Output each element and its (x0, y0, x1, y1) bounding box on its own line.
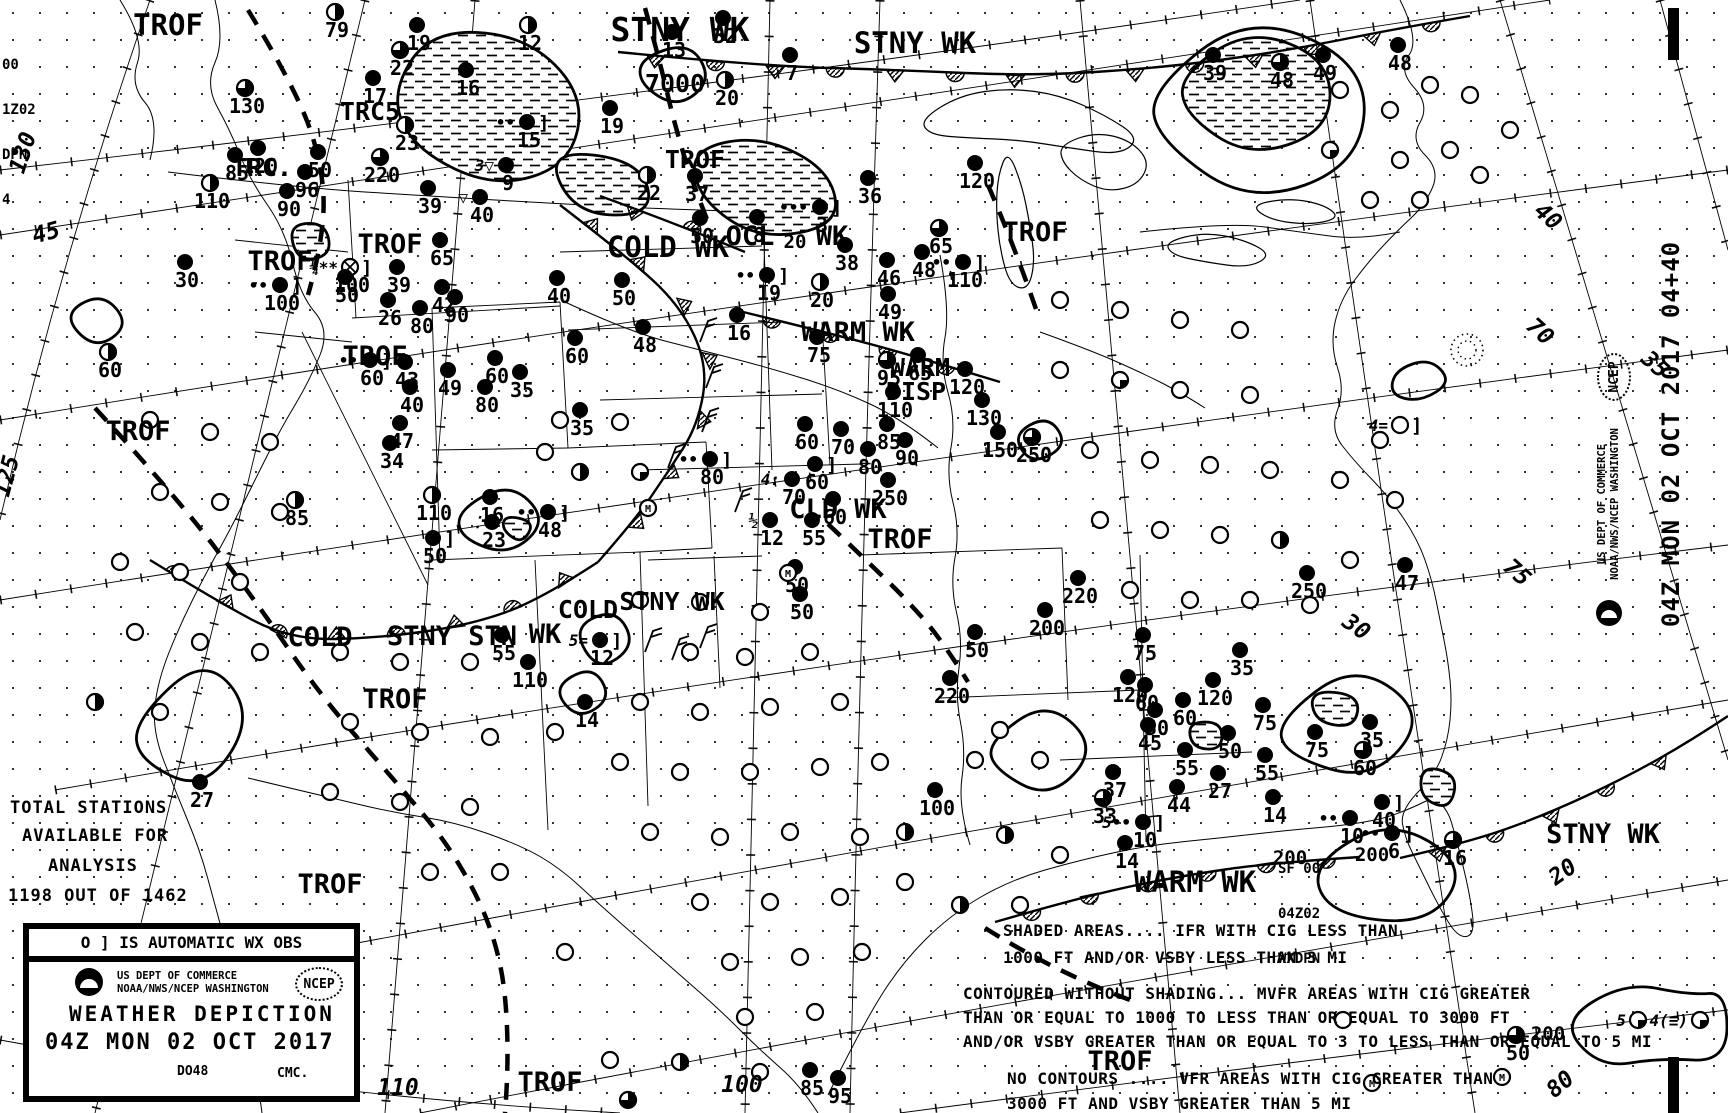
graticule-label: 110 (377, 1075, 419, 1101)
station-plot (1052, 362, 1068, 378)
station-plot (620, 1092, 636, 1108)
station-plot (1182, 592, 1198, 608)
product-code: DO48 (177, 1064, 208, 1079)
station-plot (1262, 462, 1278, 478)
station-value: 23 (395, 131, 419, 155)
station-value: 250 (1016, 443, 1052, 467)
note-shaded-1: SHADED AREAS.... IFR WITH CIG LESS THAN (1003, 921, 1398, 940)
station-plot (632, 464, 648, 480)
station-value: 35 (1230, 656, 1254, 680)
station-bracket: ] (291, 275, 302, 297)
ncep-logo: NCEP (295, 967, 343, 1001)
station-value: 110 (416, 501, 452, 525)
auto-obs-note: O ] IS AUTOMATIC WX OBS (29, 929, 354, 962)
station-plot (152, 704, 168, 720)
station-value: 90 (277, 197, 301, 221)
station-plot (252, 644, 268, 660)
map-label: OCL (726, 221, 775, 252)
station-bracket: ] (1154, 812, 1165, 834)
map-label: TROF (867, 524, 932, 555)
station-plot (1152, 522, 1168, 538)
station-plot (967, 752, 983, 768)
station-plot (1012, 897, 1028, 913)
station-value: 14 (1263, 803, 1287, 827)
station-plot (1387, 492, 1403, 508)
station-bracket: ] (778, 265, 789, 287)
station-value: 50 (790, 600, 814, 624)
station-value: 75 (1305, 738, 1329, 762)
station-plot (1322, 142, 1338, 158)
station-plot (232, 574, 248, 590)
station-value: 79 (325, 18, 349, 42)
legend-body: US DEPT OF COMMERCE NOAA/NWS/NCEP WASHIN… (29, 962, 354, 1096)
station-plot (1502, 122, 1518, 138)
station-value: 45 (1138, 731, 1162, 755)
station-value: 50 (1218, 739, 1242, 763)
station-value: 22 (390, 56, 414, 80)
station-plot (172, 564, 188, 580)
station-value: 55 (1175, 756, 1199, 780)
station-plot (1092, 512, 1108, 528)
station-plot (1172, 382, 1188, 398)
station-value: 75 (1133, 641, 1157, 665)
station-value: 49 (1313, 61, 1337, 85)
station-value: 120 (1197, 686, 1233, 710)
station-value: 16 (1443, 846, 1467, 870)
station-bracket: ] (1403, 823, 1414, 845)
station-plot (1122, 582, 1138, 598)
station-value: 200 (1029, 616, 1065, 640)
station-plot (1242, 387, 1258, 403)
graticule-label: 100 (721, 1072, 763, 1098)
station-value: 65 (929, 234, 953, 258)
station-bracket: ] (444, 528, 455, 550)
station-plot (602, 1052, 618, 1068)
station-bracket: ] (1411, 415, 1422, 437)
note-vfr-2: 3000 FT AND VSBY GREATER THAN 5 MI (1007, 1094, 1352, 1113)
station-plot (1342, 552, 1358, 568)
station-plot (1382, 102, 1398, 118)
station-value: 6 (1388, 839, 1400, 863)
station-plot (1332, 472, 1348, 488)
station-value: 80 (858, 455, 882, 479)
station-plot (1032, 752, 1048, 768)
station-value: 60 (565, 344, 589, 368)
station-value: 90 (895, 446, 919, 470)
station-plot (1112, 372, 1128, 388)
station-value: 27 (1208, 779, 1232, 803)
station-plot (262, 434, 278, 450)
station-value: 7 (786, 61, 798, 85)
station-bracket: ] (721, 449, 732, 471)
station-prefix: •• (736, 266, 755, 285)
station-plot (1172, 312, 1188, 328)
station-plot (482, 729, 498, 745)
station-plot (422, 864, 438, 880)
station-prefix: 4(≡) (1649, 1011, 1688, 1030)
station-plot (632, 694, 648, 710)
station-plot (462, 654, 478, 670)
station-value: 90 (445, 303, 469, 327)
station-plot (897, 874, 913, 890)
map-label: TRC5 (340, 97, 400, 126)
station-bracket: ] (974, 252, 985, 274)
station-plot (322, 784, 338, 800)
station-value: 100 (919, 796, 955, 820)
station-value: 48 (1388, 51, 1412, 75)
station-value: 26 (378, 306, 402, 330)
stats-line-4: 1198 OUT OF 1462 (8, 886, 188, 906)
station-plot (392, 654, 408, 670)
station-bracket: ] (831, 197, 842, 219)
station-plot: 4(≡) (1649, 1011, 1708, 1030)
station-plot (762, 699, 778, 715)
svg-text:M: M (785, 569, 791, 580)
station-bracket: ] (538, 112, 549, 134)
map-label: TROF (133, 8, 203, 42)
station-plot (792, 949, 808, 965)
ifr-shaded-area (1421, 769, 1455, 806)
station-prefix: ▽ (458, 188, 468, 207)
station-plot: M (1494, 1069, 1510, 1085)
station-plot (1472, 167, 1488, 183)
station-value: 14 (575, 708, 599, 732)
map-label: 200 (1355, 844, 1389, 866)
station-prefix: ••• (779, 198, 808, 217)
map-label: CLD WK (789, 494, 887, 525)
station-plot (1242, 592, 1258, 608)
station-plot: M (640, 500, 656, 516)
station-plot (462, 799, 478, 815)
frame-mark-bottom (1668, 1057, 1679, 1113)
station-plot: M (780, 565, 796, 581)
map-label: TRC. (232, 153, 292, 182)
station-plot (692, 704, 708, 720)
map-label: TROF (357, 229, 422, 260)
station-value: 40 (547, 284, 571, 308)
station-value: 40 (470, 203, 494, 227)
station-prefix: 5•• (1102, 813, 1131, 832)
station-value: 47 (1395, 571, 1419, 595)
station-value: 60 (1353, 756, 1377, 780)
station-plot (152, 484, 168, 500)
station-plot (1422, 77, 1438, 93)
station-value: 49 (438, 376, 462, 400)
station-prefix: •• (679, 450, 698, 469)
station-value: 23 (482, 528, 506, 552)
map-label: TROF (665, 145, 725, 174)
legend-box: O ] IS AUTOMATIC WX OBS US DEPT OF COMME… (23, 923, 360, 1102)
station-value: 50 (965, 638, 989, 662)
svg-text:M: M (1499, 1073, 1505, 1084)
station-value: 48 (1270, 68, 1294, 92)
station-value: 60 (1173, 706, 1197, 730)
frame-mark-top (1668, 8, 1679, 60)
station-plot (572, 464, 588, 480)
station-plot (807, 1004, 823, 1020)
station-value: 35 (510, 378, 534, 402)
station-value: 150 (982, 438, 1018, 462)
station-prefix: 5= (569, 631, 588, 650)
station-value: 110 (194, 189, 230, 213)
station-value: 20 (810, 288, 834, 312)
station-plot (557, 944, 573, 960)
station-plot (552, 412, 568, 428)
station-value: 37 (685, 182, 709, 206)
svg-text:M: M (645, 504, 651, 515)
station-value: 39 (1203, 61, 1227, 85)
station-plot (212, 494, 228, 510)
station-plot (1112, 302, 1128, 318)
station-value: 80 (410, 314, 434, 338)
station-plot (127, 624, 143, 640)
station-plot (672, 764, 688, 780)
station-value: 220 (934, 684, 970, 708)
map-label: TROF (247, 246, 312, 277)
station-bracket: ] (826, 454, 837, 476)
station-prefix: •• (496, 113, 515, 132)
station-value: 16 (727, 321, 751, 345)
station-plot (272, 504, 288, 520)
station-plot (612, 754, 628, 770)
station-plot (612, 414, 628, 430)
station-plot (992, 722, 1008, 738)
station-value: 22 (637, 181, 661, 205)
station-value: 48 (633, 333, 657, 357)
agency-text: US DEPT OF COMMERCE NOAA/NWS/NCEP WASHIN… (117, 970, 269, 996)
map-label: TROF (362, 684, 427, 715)
weather-depiction-chart: 1922161232720191315••]93▽223713079178512… (0, 0, 1728, 1113)
station-plot (712, 829, 728, 845)
station-plot (412, 724, 428, 740)
station-id-text: SF 00 04Z02 WXDPN (1278, 832, 1320, 997)
station-value: 80 (475, 393, 499, 417)
map-label: TROF (342, 341, 407, 372)
station-plot (854, 944, 870, 960)
noaa-logo (75, 968, 103, 996)
station-plot (1462, 87, 1478, 103)
map-label: TROF (297, 869, 362, 900)
station-plot (202, 424, 218, 440)
station-value: 27 (190, 788, 214, 812)
station-plot (1142, 452, 1158, 468)
station-plot (737, 1009, 753, 1025)
station-value: 50 (335, 283, 359, 307)
map-label: STNY WK (1546, 819, 1661, 850)
station-value: 65 (430, 246, 454, 270)
map-label: 7000 (645, 69, 705, 98)
station-value: 35 (570, 416, 594, 440)
station-plot (87, 694, 103, 710)
station-plot (1272, 532, 1288, 548)
station-value: 60 (98, 358, 122, 382)
station-plot (897, 824, 913, 840)
station-value: 40 (400, 393, 424, 417)
station-prefix: •• (249, 276, 268, 295)
note-contoured-3: AND/OR VSBY GREATER THAN OR EQUAL TO 3 T… (963, 1032, 1652, 1051)
station-plot (682, 644, 698, 660)
side-ncep-logo: NCEP (1597, 353, 1631, 401)
station-plot (1372, 432, 1388, 448)
product-title: WEATHER DEPICTION (69, 1002, 335, 1026)
station-plot (1052, 847, 1068, 863)
station-plot (1082, 442, 1098, 458)
map-label: COLD (558, 595, 618, 624)
station-plot (672, 1054, 688, 1070)
left-edge-station-text: 00 1Z02 DPN 4 (2, 28, 36, 238)
map-label: DISP (886, 377, 946, 406)
station-prefix: •• (1319, 809, 1338, 828)
station-value: 34 (380, 449, 404, 473)
station-prefix: 4: (761, 470, 780, 489)
station-value: 55 (1255, 761, 1279, 785)
station-plot (997, 827, 1013, 843)
station-plot (1212, 527, 1228, 543)
note-contoured-2: THAN OR EQUAL TO 1000 TO LESS THAN OR EQ… (963, 1008, 1510, 1027)
station-plot (737, 649, 753, 665)
stats-line-1: TOTAL STATIONS (10, 798, 167, 818)
station-prefix: 3▽ (474, 156, 495, 175)
station-plot (1052, 292, 1068, 308)
station-value: 19 (600, 114, 624, 138)
station-value: 120 (959, 169, 995, 193)
station-plot (1302, 597, 1318, 613)
map-label: WARM WK (1134, 865, 1257, 899)
station-plot (872, 754, 888, 770)
station-plot (537, 444, 553, 460)
station-value: 16 (456, 76, 480, 100)
station-plot (1332, 82, 1348, 98)
station-value: 95 (828, 1084, 852, 1108)
station-plot (1202, 457, 1218, 473)
station-plot (1412, 192, 1428, 208)
station-prefix: ½ (748, 511, 758, 530)
station-plot (742, 764, 758, 780)
valid-time: 04Z MON 02 OCT 2017 (45, 1030, 335, 1055)
station-value: 55 (802, 526, 826, 550)
station-plot (782, 824, 798, 840)
station-plot (952, 897, 968, 913)
station-plot (832, 694, 848, 710)
station-value: 12 (760, 526, 784, 550)
station-value: 220 (364, 163, 400, 187)
station-plot (812, 759, 828, 775)
side-noaa-logo (1596, 600, 1622, 626)
station-prefix: •• (1361, 824, 1380, 843)
station-value: 36 (858, 184, 882, 208)
station-plot (642, 824, 658, 840)
note-vfr-1: NO CONTOURS .... VFR AREAS WITH CIG GREA… (1007, 1069, 1493, 1088)
station-bracket: ] (611, 630, 622, 652)
station-plot (1232, 322, 1248, 338)
station-value: 30 (175, 268, 199, 292)
station-plot (342, 714, 358, 730)
station-prefix: 5 (1616, 1011, 1626, 1030)
station-value: 60 (795, 430, 819, 454)
station-value: 75 (1253, 711, 1277, 735)
station-plot (802, 644, 818, 660)
station-bracket: ] (361, 257, 372, 279)
station-value: 110 (512, 668, 548, 692)
station-value: 85 (800, 1076, 824, 1100)
station-plot (852, 829, 868, 845)
station-value: 20 (715, 86, 739, 110)
note-contoured-1: CONTOURED WITHOUT SHADING... MVFR AREAS … (963, 984, 1530, 1003)
cmc-code: CMC. (277, 1066, 308, 1081)
station-plot (1362, 192, 1378, 208)
station-plot (1392, 152, 1408, 168)
station-value: 44 (1167, 793, 1191, 817)
station-bracket: ] (559, 502, 570, 524)
station-prefix: ¼** (309, 258, 338, 277)
station-value: 130 (229, 94, 265, 118)
station-plot (547, 724, 563, 740)
station-plot (752, 604, 768, 620)
station-plot (192, 634, 208, 650)
map-label: STNY WK (619, 587, 724, 616)
station-value: 12 (518, 31, 542, 55)
station-plot (762, 894, 778, 910)
map-label: 20 (784, 231, 807, 253)
station-value: 50 (612, 286, 636, 310)
stats-line-3: ANALYSIS (48, 856, 138, 876)
map-label: COLD WK (607, 230, 730, 264)
station-value: 39 (418, 194, 442, 218)
map-label: STNY WK (610, 10, 749, 49)
station-value: 9 (502, 171, 514, 195)
station-plot (392, 794, 408, 810)
map-label: WK (816, 221, 849, 252)
station-plot (492, 864, 508, 880)
station-bracket: ] (1393, 792, 1404, 814)
station-plot (722, 954, 738, 970)
station-plot (692, 894, 708, 910)
station-plot (1442, 142, 1458, 158)
station-value: 38 (835, 251, 859, 275)
map-label: TROF (517, 1067, 582, 1098)
map-label: TROF (1002, 217, 1067, 248)
stats-line-2: AVAILABLE FOR (22, 826, 168, 846)
map-label: COLD (287, 622, 352, 653)
station-plot (832, 889, 848, 905)
station-plot (112, 554, 128, 570)
map-label: TROF (105, 416, 170, 447)
station-prefix: •• (517, 503, 536, 522)
station-value: 19 (407, 31, 431, 55)
map-label: STNY STN (387, 621, 517, 652)
map-label: WARM WK (801, 317, 916, 348)
station-value: 220 (1062, 584, 1098, 608)
map-label: STNY WK (854, 26, 977, 60)
